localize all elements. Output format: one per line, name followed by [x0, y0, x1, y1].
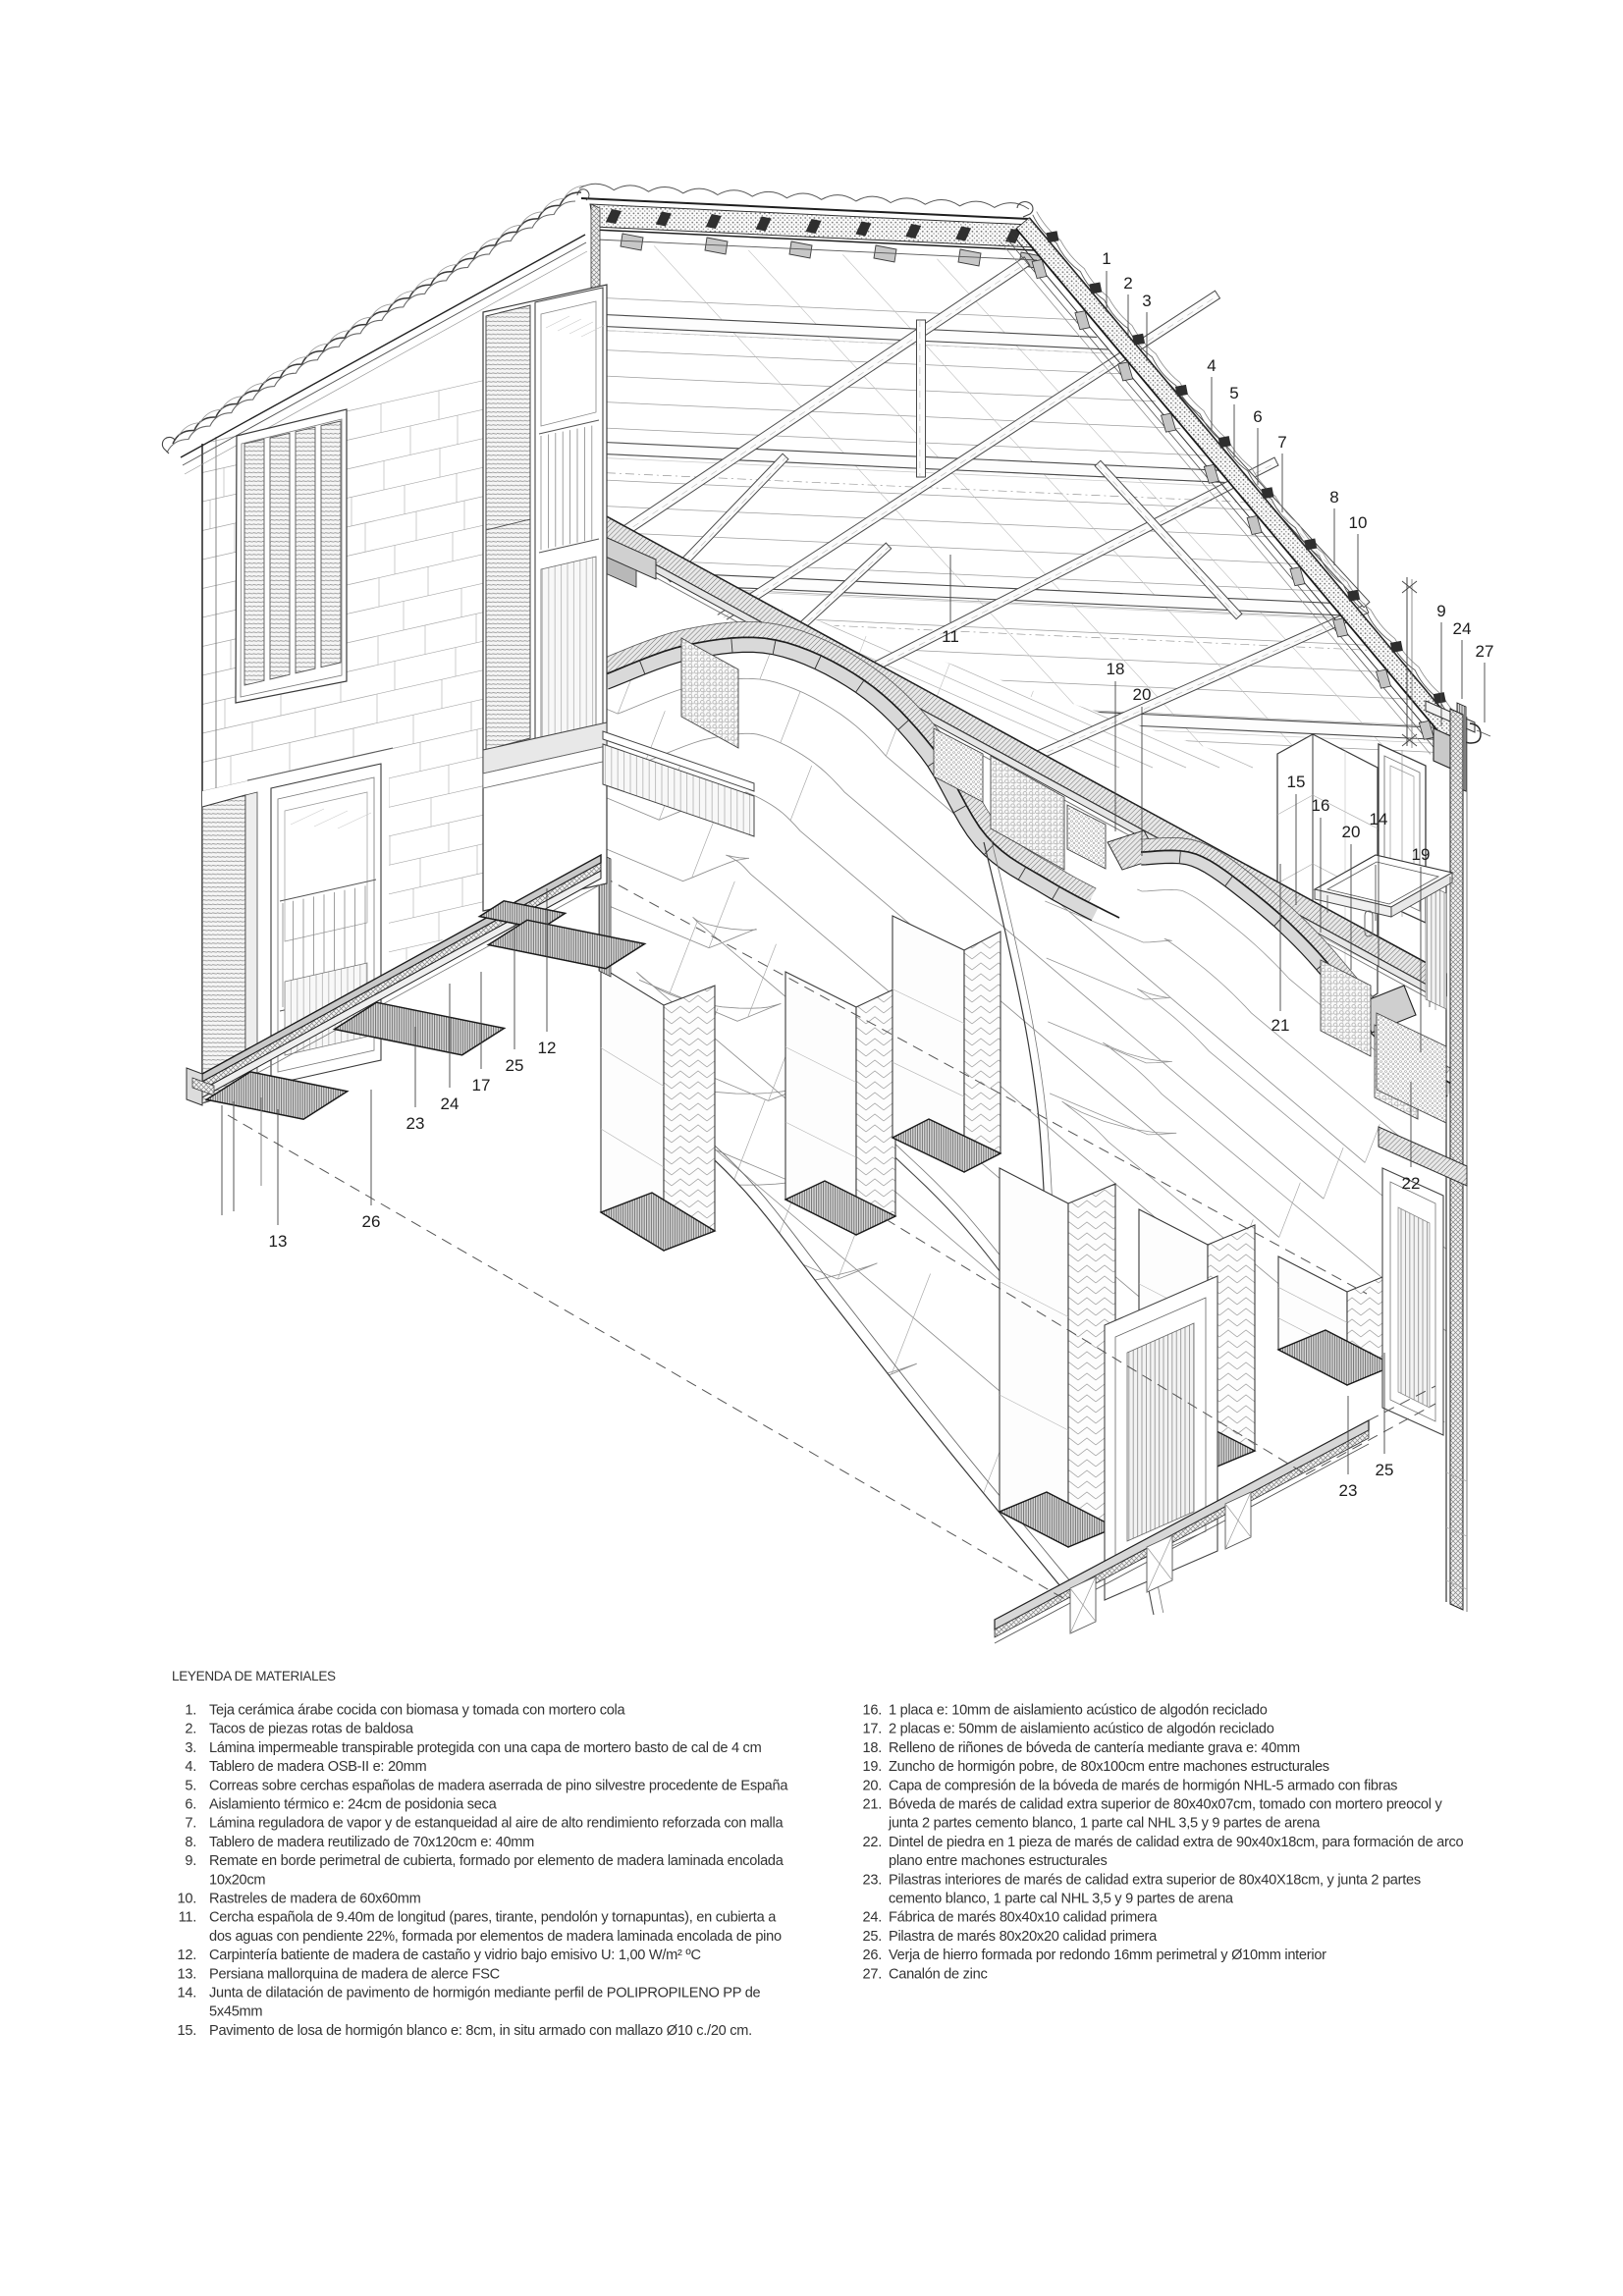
svg-text:Canalón de zinc: Canalón de zinc	[889, 1966, 987, 1982]
svg-text:3: 3	[1142, 292, 1151, 310]
svg-text:24: 24	[1453, 619, 1472, 638]
svg-text:18.: 18.	[863, 1740, 882, 1756]
svg-text:15: 15	[1287, 773, 1306, 791]
svg-text:18: 18	[1107, 660, 1125, 678]
svg-text:23: 23	[406, 1114, 425, 1133]
svg-text:20: 20	[1342, 823, 1361, 841]
svg-text:plano entre machones estructur: plano entre machones estructurales	[889, 1853, 1108, 1869]
svg-text:cemento blanco, 1 parte cal NH: cemento blanco, 1 parte cal NHL 3,5 y 9 …	[889, 1892, 1234, 1907]
svg-text:7: 7	[1277, 433, 1286, 452]
svg-text:26.: 26.	[863, 1948, 882, 1963]
svg-text:12: 12	[538, 1039, 557, 1057]
svg-text:11.: 11.	[179, 1910, 196, 1926]
svg-text:2: 2	[1123, 274, 1132, 293]
svg-text:Carpintería batiente de madera: Carpintería batiente de madera de castañ…	[209, 1948, 701, 1963]
svg-text:17.: 17.	[863, 1722, 882, 1737]
svg-text:2.: 2.	[185, 1722, 196, 1737]
svg-text:16.: 16.	[863, 1703, 882, 1719]
svg-text:Teja cerámica árabe cocida con: Teja cerámica árabe cocida con biomasa y…	[209, 1703, 626, 1719]
svg-text:Fábrica de marés 80x40x10 cali: Fábrica de marés 80x40x10 calidad primer…	[889, 1910, 1158, 1926]
svg-text:Lámina reguladora de vapor y d: Lámina reguladora de vapor y de estanque…	[209, 1816, 784, 1832]
svg-text:25: 25	[1376, 1461, 1394, 1479]
svg-text:25: 25	[506, 1056, 524, 1075]
svg-text:Lámina impermeable transpirabl: Lámina impermeable transpirable protegid…	[209, 1740, 762, 1756]
svg-text:19.: 19.	[863, 1759, 882, 1775]
svg-text:20.: 20.	[863, 1778, 882, 1793]
svg-text:10: 10	[1349, 513, 1368, 532]
svg-text:Capa de compresión de la bóved: Capa de compresión de la bóveda de marés…	[889, 1778, 1397, 1793]
svg-text:6.: 6.	[185, 1797, 196, 1813]
svg-text:Remate en borde perimetral de: Remate en borde perimetral de cubierta, …	[209, 1853, 784, 1869]
svg-text:15.: 15.	[178, 2023, 196, 2039]
svg-text:9: 9	[1436, 602, 1445, 620]
svg-text:13.: 13.	[178, 1966, 196, 1982]
svg-text:LEYENDA DE MATERIALES: LEYENDA DE MATERIALES	[172, 1669, 336, 1683]
svg-text:7.: 7.	[185, 1816, 196, 1832]
svg-text:13: 13	[269, 1232, 288, 1251]
svg-text:Verja de hierro formada por re: Verja de hierro formada por redondo 16mm…	[889, 1948, 1326, 1963]
svg-text:14.: 14.	[178, 1986, 196, 2002]
svg-text:8.: 8.	[185, 1835, 196, 1850]
svg-text:Correas sobre cerchas española: Correas sobre cerchas españolas de mader…	[209, 1778, 788, 1793]
svg-text:19: 19	[1412, 845, 1431, 864]
svg-text:21: 21	[1271, 1016, 1290, 1035]
svg-text:Pilastras interiores de marés: Pilastras interiores de marés de calidad…	[889, 1872, 1421, 1888]
svg-text:Pavimento de losa de hormigón: Pavimento de losa de hormigón blanco e: …	[209, 2023, 752, 2039]
svg-text:Zuncho de hormigón pobre, de 8: Zuncho de hormigón pobre, de 80x100cm en…	[889, 1759, 1329, 1775]
svg-text:1 placa e: 10mm de aislamiento: 1 placa e: 10mm de aislamiento acústico …	[889, 1703, 1268, 1719]
svg-text:10.: 10.	[178, 1892, 196, 1907]
svg-text:5: 5	[1229, 384, 1238, 402]
svg-text:Cercha española de 9.40m de lo: Cercha española de 9.40m de longitud (pa…	[209, 1910, 777, 1926]
svg-text:Tacos de piezas rotas de baldo: Tacos de piezas rotas de baldosa	[209, 1722, 414, 1737]
svg-text:10x20cm: 10x20cm	[209, 1872, 265, 1888]
svg-text:8: 8	[1329, 488, 1338, 507]
svg-text:6: 6	[1253, 407, 1262, 426]
svg-text:Junta de dilatación de pavimen: Junta de dilatación de pavimento de horm…	[209, 1986, 761, 2002]
svg-text:27: 27	[1476, 642, 1494, 661]
svg-text:14: 14	[1370, 810, 1388, 828]
svg-text:Pilastra de marés 80x20x20 cal: Pilastra de marés 80x20x20 calidad prime…	[889, 1929, 1158, 1945]
svg-text:21.: 21.	[863, 1797, 882, 1813]
svg-text:3.: 3.	[185, 1740, 196, 1756]
svg-text:16: 16	[1312, 796, 1330, 815]
svg-text:Aislamiento térmico e: 24cm de: Aislamiento térmico e: 24cm de posidonia…	[209, 1797, 498, 1813]
svg-text:24.: 24.	[863, 1910, 882, 1926]
svg-text:23: 23	[1339, 1481, 1358, 1500]
svg-text:Bóveda de marés de calidad ext: Bóveda de marés de calidad extra superio…	[889, 1797, 1442, 1813]
svg-text:27.: 27.	[863, 1966, 882, 1982]
svg-text:1.: 1.	[185, 1703, 196, 1719]
svg-text:1: 1	[1102, 249, 1110, 268]
svg-text:9.: 9.	[185, 1853, 196, 1869]
svg-text:2 placas e: 50mm de aislamient: 2 placas e: 50mm de aislamiento acústico…	[889, 1722, 1274, 1737]
svg-text:4.: 4.	[185, 1759, 196, 1775]
svg-text:17: 17	[472, 1076, 491, 1095]
svg-text:Dintel de piedra en 1 pieza de: Dintel de piedra en 1 pieza de marés de …	[889, 1835, 1464, 1850]
svg-text:junta 2 partes cemento blanco,: junta 2 partes cemento blanco, 1 parte c…	[888, 1816, 1321, 1832]
svg-text:11: 11	[942, 627, 959, 646]
svg-text:5x45mm: 5x45mm	[209, 2004, 262, 2020]
svg-text:Tablero de madera OSB-II e: 20: Tablero de madera OSB-II e: 20mm	[209, 1759, 427, 1775]
svg-text:Tablero de madera reutilizado: Tablero de madera reutilizado de 70x120c…	[209, 1835, 534, 1850]
svg-text:26: 26	[362, 1212, 381, 1231]
svg-text:22.: 22.	[863, 1835, 882, 1850]
svg-text:12.: 12.	[178, 1948, 196, 1963]
svg-text:24: 24	[441, 1095, 460, 1113]
svg-text:4: 4	[1207, 356, 1216, 375]
svg-text:Persiana mallorquina de madera: Persiana mallorquina de madera de alerce…	[209, 1966, 500, 1982]
svg-text:23.: 23.	[863, 1872, 882, 1888]
svg-text:dos aguas con pendiente 22%, f: dos aguas con pendiente 22%, formada por…	[209, 1929, 782, 1945]
svg-text:22: 22	[1402, 1174, 1421, 1193]
svg-text:25.: 25.	[863, 1929, 882, 1945]
svg-text:20: 20	[1133, 685, 1152, 704]
svg-text:Relleno de riñones de bóveda d: Relleno de riñones de bóveda de cantería…	[889, 1740, 1300, 1756]
svg-text:Rastreles de madera de 60x60mm: Rastreles de madera de 60x60mm	[209, 1892, 421, 1907]
svg-text:5.: 5.	[185, 1778, 196, 1793]
